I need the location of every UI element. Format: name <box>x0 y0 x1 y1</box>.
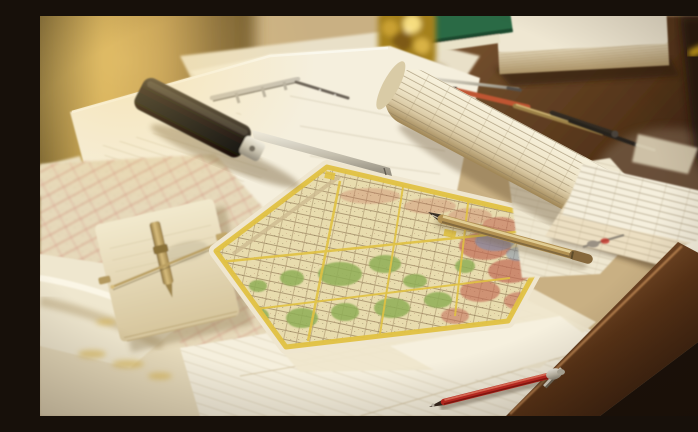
photo-architects-desk: Photograph of an architect's wooden desk… <box>40 16 698 416</box>
vignette-overlay <box>40 16 698 416</box>
